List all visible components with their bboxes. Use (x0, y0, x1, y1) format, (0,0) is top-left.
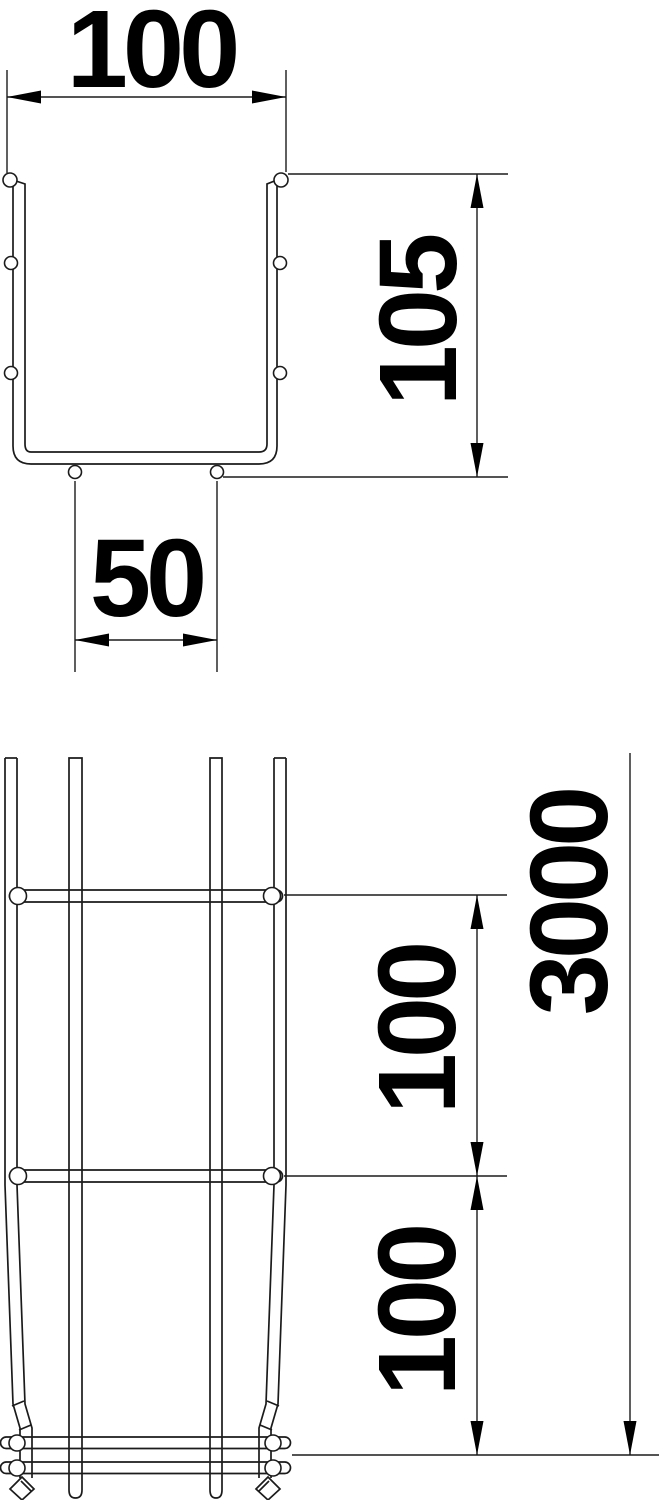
weld-point (274, 367, 287, 380)
weld-point (264, 888, 281, 905)
dim-label-mesh-pitch-lower: 100 (356, 1227, 479, 1396)
wire-inner-line (17, 758, 32, 1478)
dim-label-total-length: 3000 (508, 790, 631, 1016)
arrowhead-up (471, 174, 484, 208)
weld-point (5, 257, 18, 270)
wire-hook-tip (10, 1477, 34, 1500)
dimension-labels: 100 105 50 100 100 3000 (67, 0, 631, 1396)
longitudinal-wire-right-outer (256, 758, 286, 1500)
drawing-page: 100 105 50 100 100 3000 (0, 0, 659, 1500)
bend-facet (260, 1425, 272, 1430)
weld-point (5, 367, 18, 380)
arrowhead-down (471, 1421, 484, 1455)
arrowhead-down (471, 443, 484, 477)
arrowhead-right (252, 91, 286, 104)
dim-label-mesh-pitch-upper: 100 (356, 945, 479, 1114)
weld-point (265, 1435, 281, 1451)
weld-point (274, 257, 287, 270)
weld-points (3, 173, 288, 1476)
weld-point (9, 1460, 25, 1476)
weld-point (265, 1460, 281, 1476)
dimension-lines (7, 70, 659, 1455)
tray-profile (13, 180, 277, 464)
cross-wire-middle (10, 1170, 283, 1182)
technical-drawing: 100 105 50 100 100 3000 (0, 0, 659, 1500)
cross-section-view (13, 180, 277, 464)
weld-point (274, 173, 288, 187)
longitudinal-wire-left-outer (5, 758, 34, 1500)
weld-point (10, 888, 27, 905)
arrowhead-up (471, 1176, 484, 1210)
longitudinal-wire-inner-right (210, 758, 222, 1498)
plan-view (1, 758, 291, 1500)
wire-hook-tip (256, 1477, 280, 1500)
weld-point (3, 173, 17, 187)
dim-label-bottom-wire-spacing: 50 (90, 517, 203, 640)
hook-facet (259, 1481, 269, 1491)
arrowhead-down (624, 1421, 637, 1455)
hook-facet (21, 1481, 31, 1491)
cross-wire-upper (10, 890, 283, 902)
weld-point (211, 466, 224, 479)
arrowhead-up (471, 895, 484, 929)
dim-label-outer-width: 100 (67, 0, 236, 111)
wire-inner-line (259, 758, 274, 1478)
weld-point (9, 1435, 25, 1451)
dimension-arrowheads (7, 91, 637, 1456)
arrowhead-left (7, 91, 41, 104)
end-cross-wire-1 (1, 1437, 291, 1449)
end-cross-wire-2 (1, 1462, 291, 1474)
arrowhead-down (471, 1142, 484, 1176)
dim-label-side-height: 105 (357, 235, 480, 406)
weld-point (69, 466, 82, 479)
bend-facet (19, 1425, 31, 1430)
longitudinal-wire-inner-left (69, 758, 82, 1498)
weld-point (264, 1168, 281, 1185)
weld-point (10, 1168, 27, 1185)
